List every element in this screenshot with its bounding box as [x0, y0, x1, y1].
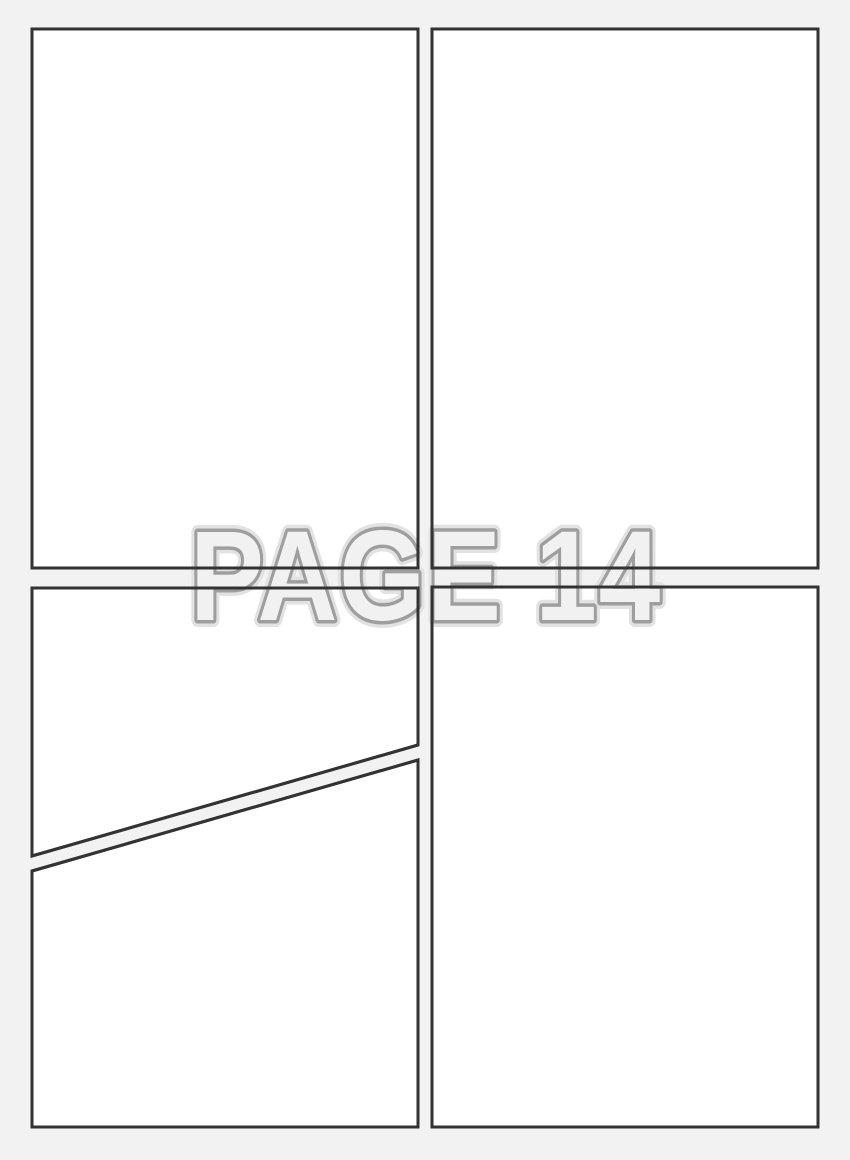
page-watermark: PAGE 14 PAGE 14 [190, 505, 662, 648]
page-label: PAGE 14 [190, 505, 662, 648]
panel-top-right [432, 29, 818, 568]
panel-bottom-right [432, 587, 818, 1127]
panel-top-left [32, 29, 418, 568]
panel-grid: PAGE 14 PAGE 14 [0, 0, 850, 1160]
comic-page-template: PAGE 14 PAGE 14 [0, 0, 850, 1160]
